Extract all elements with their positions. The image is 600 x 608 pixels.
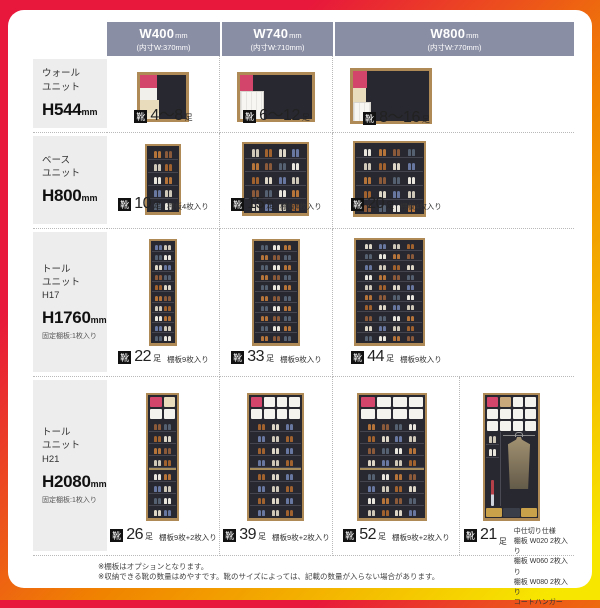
- shoe-pair: [395, 456, 402, 466]
- shoe-pair: [382, 470, 389, 480]
- shoe-pair: [368, 494, 375, 504]
- shoe: [379, 265, 382, 270]
- shelf-row: [255, 303, 297, 313]
- shoe-pair: [154, 173, 161, 184]
- shoe-pair: [154, 160, 161, 171]
- storage-box: [513, 421, 524, 431]
- shoe: [413, 498, 416, 504]
- shoe-pair: [258, 494, 265, 504]
- shelf-row: [360, 470, 424, 482]
- shoe: [164, 306, 167, 311]
- shelf-row: [255, 333, 297, 342]
- shoe: [379, 149, 382, 156]
- shoe-pair: [408, 158, 415, 170]
- shoe-icon: 靴: [118, 351, 131, 364]
- shoe: [413, 474, 416, 480]
- shoe-pair: [164, 272, 171, 280]
- shoe-pair: [261, 323, 268, 331]
- shoe: [292, 149, 295, 156]
- coat-hanger-icon: [515, 432, 523, 437]
- shoe: [272, 510, 275, 516]
- shoe: [407, 285, 410, 290]
- shoe: [372, 510, 375, 516]
- shelf-row: [148, 173, 178, 186]
- shoe: [382, 448, 385, 454]
- shelf-count-note: 棚板9枚+2枚入り: [159, 532, 217, 543]
- table-cell: 靴44足棚板9枚入り: [333, 229, 574, 377]
- shoe: [276, 448, 279, 454]
- shoe: [279, 177, 282, 184]
- shoe: [265, 149, 268, 156]
- shoe: [365, 295, 368, 300]
- capacity-unit: 足: [499, 536, 507, 547]
- shoe-shelves: [254, 241, 298, 343]
- spec-note-line: コートハンガー: [514, 598, 574, 608]
- shelf-row: [360, 494, 424, 506]
- shoe: [382, 424, 385, 430]
- cabinet-part: [140, 75, 157, 88]
- row-header-cell: ウォールユニットH544mm: [33, 56, 107, 133]
- shoe: [277, 306, 280, 311]
- shoe-pair: [164, 420, 171, 430]
- unit-height: H1760mm: [42, 308, 107, 328]
- shoe: [290, 486, 293, 492]
- shoe-pair: [368, 506, 375, 516]
- shoe-pair: [154, 506, 161, 516]
- shoe: [368, 510, 371, 516]
- shelf-row: [245, 145, 306, 159]
- shoe: [411, 305, 414, 310]
- shoe: [273, 285, 276, 290]
- shoe: [272, 498, 275, 504]
- shoe: [296, 177, 299, 184]
- shoe: [393, 336, 396, 341]
- shoe-pair: [272, 420, 279, 430]
- shoe-pair: [273, 292, 280, 300]
- shoe: [168, 498, 171, 504]
- shoe: [277, 336, 280, 341]
- unit-height-unit: mm: [91, 479, 107, 489]
- capacity-value: 8〜16: [379, 110, 420, 126]
- shoe: [269, 149, 272, 156]
- shoe: [158, 424, 161, 430]
- shelf-row: [360, 444, 424, 456]
- shoe: [368, 460, 371, 466]
- shelf-row: [148, 160, 178, 173]
- shoe-icon: 靴: [223, 529, 236, 542]
- shoe-pair: [395, 444, 402, 454]
- shoe: [158, 436, 161, 442]
- shoe: [413, 486, 416, 492]
- shoe-pair: [265, 159, 272, 171]
- unit-type-label: ユニット: [42, 276, 107, 289]
- shoe: [369, 336, 372, 341]
- shoe-pair: [395, 506, 402, 516]
- shoe-pair: [273, 272, 280, 280]
- shoe-pair: [292, 145, 299, 157]
- column-inner-width: (内寸W:370mm): [136, 44, 190, 53]
- shoe-pair: [272, 506, 279, 516]
- shoe-pair: [393, 241, 400, 249]
- shoe-pair: [261, 292, 268, 300]
- shoe: [397, 316, 400, 321]
- shoe: [273, 326, 276, 331]
- shoe-pair: [155, 323, 162, 331]
- cabinet-image: [483, 393, 540, 521]
- shoe: [407, 316, 410, 321]
- shoe: [386, 424, 389, 430]
- shoe: [290, 436, 293, 442]
- capacity-label: 靴6〜12足: [220, 108, 333, 124]
- shoe-pair: [284, 282, 291, 290]
- shelf-row: [360, 456, 424, 468]
- shoe: [395, 436, 398, 442]
- shoe: [408, 177, 411, 184]
- header-spacer: [33, 22, 107, 56]
- shoe-pair: [365, 241, 372, 249]
- shoe: [168, 486, 171, 492]
- shoe-pair: [261, 272, 268, 280]
- shoe-pair: [393, 312, 400, 320]
- shoe-pair: [393, 272, 400, 280]
- shoe-pair: [364, 158, 371, 170]
- shoe: [155, 275, 158, 280]
- shoe-pair: [273, 303, 280, 311]
- shoe: [382, 510, 385, 516]
- shoe-pair: [379, 292, 386, 300]
- shoe: [365, 336, 368, 341]
- shoe-pair: [365, 333, 372, 341]
- shoe: [393, 163, 396, 170]
- shelf-row: [250, 420, 301, 432]
- shoe: [290, 460, 293, 466]
- shelf-row: [152, 323, 174, 333]
- shoe-pair: [261, 282, 268, 290]
- storage-box: [500, 409, 511, 419]
- shoe: [273, 336, 276, 341]
- shoe: [365, 254, 368, 259]
- shoe: [273, 255, 276, 260]
- shoe: [493, 449, 496, 456]
- shelf-row: [250, 432, 301, 444]
- capacity-label: 靴4〜8足: [107, 108, 220, 124]
- shoe: [262, 474, 265, 480]
- shoe: [168, 275, 171, 280]
- shoe: [154, 486, 157, 492]
- shoe: [386, 448, 389, 454]
- shoe: [262, 486, 265, 492]
- capacity-unit: 足: [153, 353, 161, 364]
- shoe-pair: [395, 432, 402, 442]
- shoe-pair: [393, 261, 400, 269]
- shoe: [407, 295, 410, 300]
- shoe: [284, 245, 287, 250]
- shoe-pair: [408, 144, 415, 156]
- shoe-pair: [379, 144, 386, 156]
- table-cell: 靴22足棚板9枚入り: [107, 229, 220, 377]
- shoe-pair: [365, 312, 372, 320]
- shoe: [382, 436, 385, 442]
- storage-box: [150, 409, 162, 419]
- shoe-pair: [379, 282, 386, 290]
- shoe: [409, 460, 412, 466]
- table-cell: 靴39足棚板9枚+2枚入り: [220, 377, 333, 556]
- storage-box: [500, 421, 511, 431]
- cabinet-part: [353, 88, 366, 102]
- unit-type-label: ウォール: [42, 67, 107, 80]
- shoe-icon: 靴: [363, 112, 376, 125]
- shelf-row: [149, 494, 176, 506]
- shoe: [158, 498, 161, 504]
- shoe: [411, 244, 414, 249]
- shelf-row: [152, 242, 174, 252]
- shoe-pair: [279, 172, 286, 184]
- shoe: [369, 275, 372, 280]
- shoe-shelves: [359, 419, 425, 518]
- cabinet-part: [353, 71, 367, 88]
- shoe-pair: [258, 470, 265, 480]
- shoe: [382, 460, 385, 466]
- shoe: [286, 486, 289, 492]
- unit-type-label: トール: [42, 263, 107, 276]
- shoe: [365, 316, 368, 321]
- shelf-row: [357, 312, 422, 322]
- shoe: [258, 424, 261, 430]
- shoe-icon: 靴: [351, 198, 364, 211]
- shoe: [409, 424, 412, 430]
- row-header: ウォールユニットH544mm: [33, 59, 107, 128]
- unit-type-label: H17: [42, 289, 107, 302]
- shoe: [493, 436, 496, 443]
- shoe-pair: [272, 482, 279, 492]
- shelf-row: [255, 262, 297, 272]
- shoe: [290, 448, 293, 454]
- shoe: [379, 316, 382, 321]
- shoe: [276, 510, 279, 516]
- shoe: [256, 163, 259, 170]
- shoe-pair: [164, 303, 171, 311]
- storage-box: [393, 397, 407, 407]
- shelf-row: [357, 292, 422, 302]
- capacity-value: 15: [247, 196, 264, 212]
- shoe-shelves: [249, 419, 302, 518]
- shoe-pair: [165, 173, 172, 184]
- storage-box: [377, 397, 391, 407]
- shoe-shelves: [151, 241, 175, 343]
- shoe: [277, 255, 280, 260]
- shoe: [165, 177, 168, 184]
- shoe-icon: 靴: [231, 351, 244, 364]
- shoe: [158, 486, 161, 492]
- shoe: [277, 245, 280, 250]
- shoe: [154, 164, 157, 171]
- shoe-pair: [272, 432, 279, 442]
- shelf-row: [360, 432, 424, 444]
- shoe: [265, 245, 268, 250]
- shoe: [164, 436, 167, 442]
- shoe: [276, 436, 279, 442]
- shoe: [409, 498, 412, 504]
- shoe-pair: [154, 494, 161, 504]
- shoe: [265, 163, 268, 170]
- shoe: [286, 448, 289, 454]
- shoe-pair: [261, 242, 268, 250]
- shoe-pair: [409, 444, 416, 454]
- shoe: [277, 296, 280, 301]
- shoe-pair: [165, 147, 172, 158]
- shoe: [383, 336, 386, 341]
- catalog-page: { "colors": { "bg_red": "#e8173c", "bg_o…: [0, 0, 600, 600]
- shoe: [369, 326, 372, 331]
- shoe: [409, 474, 412, 480]
- shoe: [383, 305, 386, 310]
- shoe-pair: [258, 444, 265, 454]
- shoe: [164, 498, 167, 504]
- shoe: [413, 448, 416, 454]
- capacity-unit: 足: [302, 112, 310, 123]
- shoe: [286, 436, 289, 442]
- shoe: [372, 460, 375, 466]
- shoe-pair: [364, 144, 371, 156]
- shoe: [368, 149, 371, 156]
- shoe-pair: [379, 302, 386, 310]
- shoe: [155, 245, 158, 250]
- column-width: W400mm: [139, 25, 187, 43]
- shoe-pair: [409, 456, 416, 466]
- row-header-cell: トールユニットH17H1760mm固定棚板:1枚入り: [33, 229, 107, 377]
- shoe: [408, 163, 411, 170]
- shoe: [379, 285, 382, 290]
- shoe-pair: [284, 313, 291, 321]
- shoe: [273, 265, 276, 270]
- capacity-label: 靴22足棚板9枚入り: [107, 349, 220, 365]
- shoe: [168, 474, 171, 480]
- shoe-pair: [368, 420, 375, 430]
- shoe: [409, 448, 412, 454]
- capacity-label: 靴8〜16足: [333, 110, 460, 126]
- shoe: [364, 149, 367, 156]
- shoe-shelves: [148, 419, 177, 518]
- shoe-pair: [164, 482, 171, 492]
- shoe: [158, 177, 161, 184]
- shoe: [159, 265, 162, 270]
- shoe: [252, 149, 255, 156]
- shoe-pair: [261, 252, 268, 260]
- shelf-row: [357, 333, 422, 342]
- shoe-pair: [284, 333, 291, 341]
- shoe: [283, 149, 286, 156]
- shoe-pair: [164, 456, 171, 466]
- shoe-pair: [284, 242, 291, 250]
- shoe: [169, 151, 172, 158]
- capacity-unit: 足: [145, 531, 153, 542]
- box-row: [485, 407, 538, 419]
- box-row: [148, 395, 177, 407]
- cabinet-image: [354, 238, 425, 346]
- shoe: [397, 177, 400, 184]
- column-width: W800mm: [430, 25, 478, 43]
- row-header-cell: トールユニットH21H2080mm固定棚板:1枚入り: [33, 377, 107, 556]
- shoe-pair: [379, 312, 386, 320]
- shoe-icon: 靴: [118, 198, 131, 211]
- shoe: [369, 305, 372, 310]
- spec-note-line: 棚板 W060 2枚入り: [514, 557, 574, 577]
- shoe: [393, 254, 396, 259]
- shoe: [399, 424, 402, 430]
- shoe-pair: [164, 323, 171, 331]
- shoe-pair: [155, 303, 162, 311]
- capacity-label: 靴39足棚板9枚+2枚入り: [220, 527, 333, 543]
- shoe: [272, 474, 275, 480]
- shoe: [265, 255, 268, 260]
- unit-type-label: トール: [42, 426, 107, 439]
- shoe: [168, 460, 171, 466]
- shoe-pair: [407, 282, 414, 290]
- shoe-pair: [368, 482, 375, 492]
- shoe: [368, 424, 371, 430]
- storage-box: [487, 409, 498, 419]
- shoe: [261, 245, 264, 250]
- shoe: [399, 448, 402, 454]
- storage-box: [277, 397, 288, 407]
- shelf-count-note: 棚板9枚入り: [280, 354, 322, 365]
- table-cell: 靴33足棚板9枚入り: [220, 229, 333, 377]
- shoe-pair: [407, 241, 414, 249]
- shoe: [290, 510, 293, 516]
- capacity-unit: 足: [153, 200, 161, 211]
- shoe: [290, 474, 293, 480]
- shoe: [413, 424, 416, 430]
- shoe-pair: [273, 252, 280, 260]
- shoe-pair: [382, 482, 389, 492]
- shoe-pair: [164, 262, 171, 270]
- shoe-pair: [164, 506, 171, 516]
- shoe: [258, 486, 261, 492]
- capacity-label: 靴21足中仕切り仕様棚板 W020 2枚入り棚板 W060 2枚入り棚板 W08…: [460, 527, 574, 608]
- shoe-pair: [273, 313, 280, 321]
- shelf-count-note: 棚板9枚+2枚入り: [272, 532, 330, 543]
- shoe-pair: [365, 323, 372, 331]
- shoe: [256, 149, 259, 156]
- shelf-row: [152, 333, 174, 342]
- storage-box: [264, 397, 275, 407]
- shoe: [379, 244, 382, 249]
- shoe: [284, 285, 287, 290]
- shoe: [261, 265, 264, 270]
- shoe-pair: [164, 292, 171, 300]
- side-shoe-column: [486, 432, 499, 506]
- shoe-pair: [164, 432, 171, 442]
- shelf-row: [357, 261, 422, 271]
- shoe-pair: [286, 432, 293, 442]
- capacity-value: 20: [367, 196, 384, 212]
- box-row: [249, 407, 302, 419]
- capacity-label: 靴52足棚板9枚+2枚入り: [333, 527, 460, 543]
- shoe: [399, 436, 402, 442]
- shoe: [393, 316, 396, 321]
- shoe: [169, 164, 172, 171]
- shoe: [383, 275, 386, 280]
- shoe-pair: [273, 323, 280, 331]
- shoe-pair: [364, 172, 371, 184]
- shoe: [393, 295, 396, 300]
- shoe: [159, 336, 162, 341]
- column-header: W400mm(内寸W:370mm): [107, 22, 220, 56]
- shoe: [411, 285, 414, 290]
- shoe: [155, 306, 158, 311]
- shelf-row: [255, 282, 297, 292]
- shoe: [393, 265, 396, 270]
